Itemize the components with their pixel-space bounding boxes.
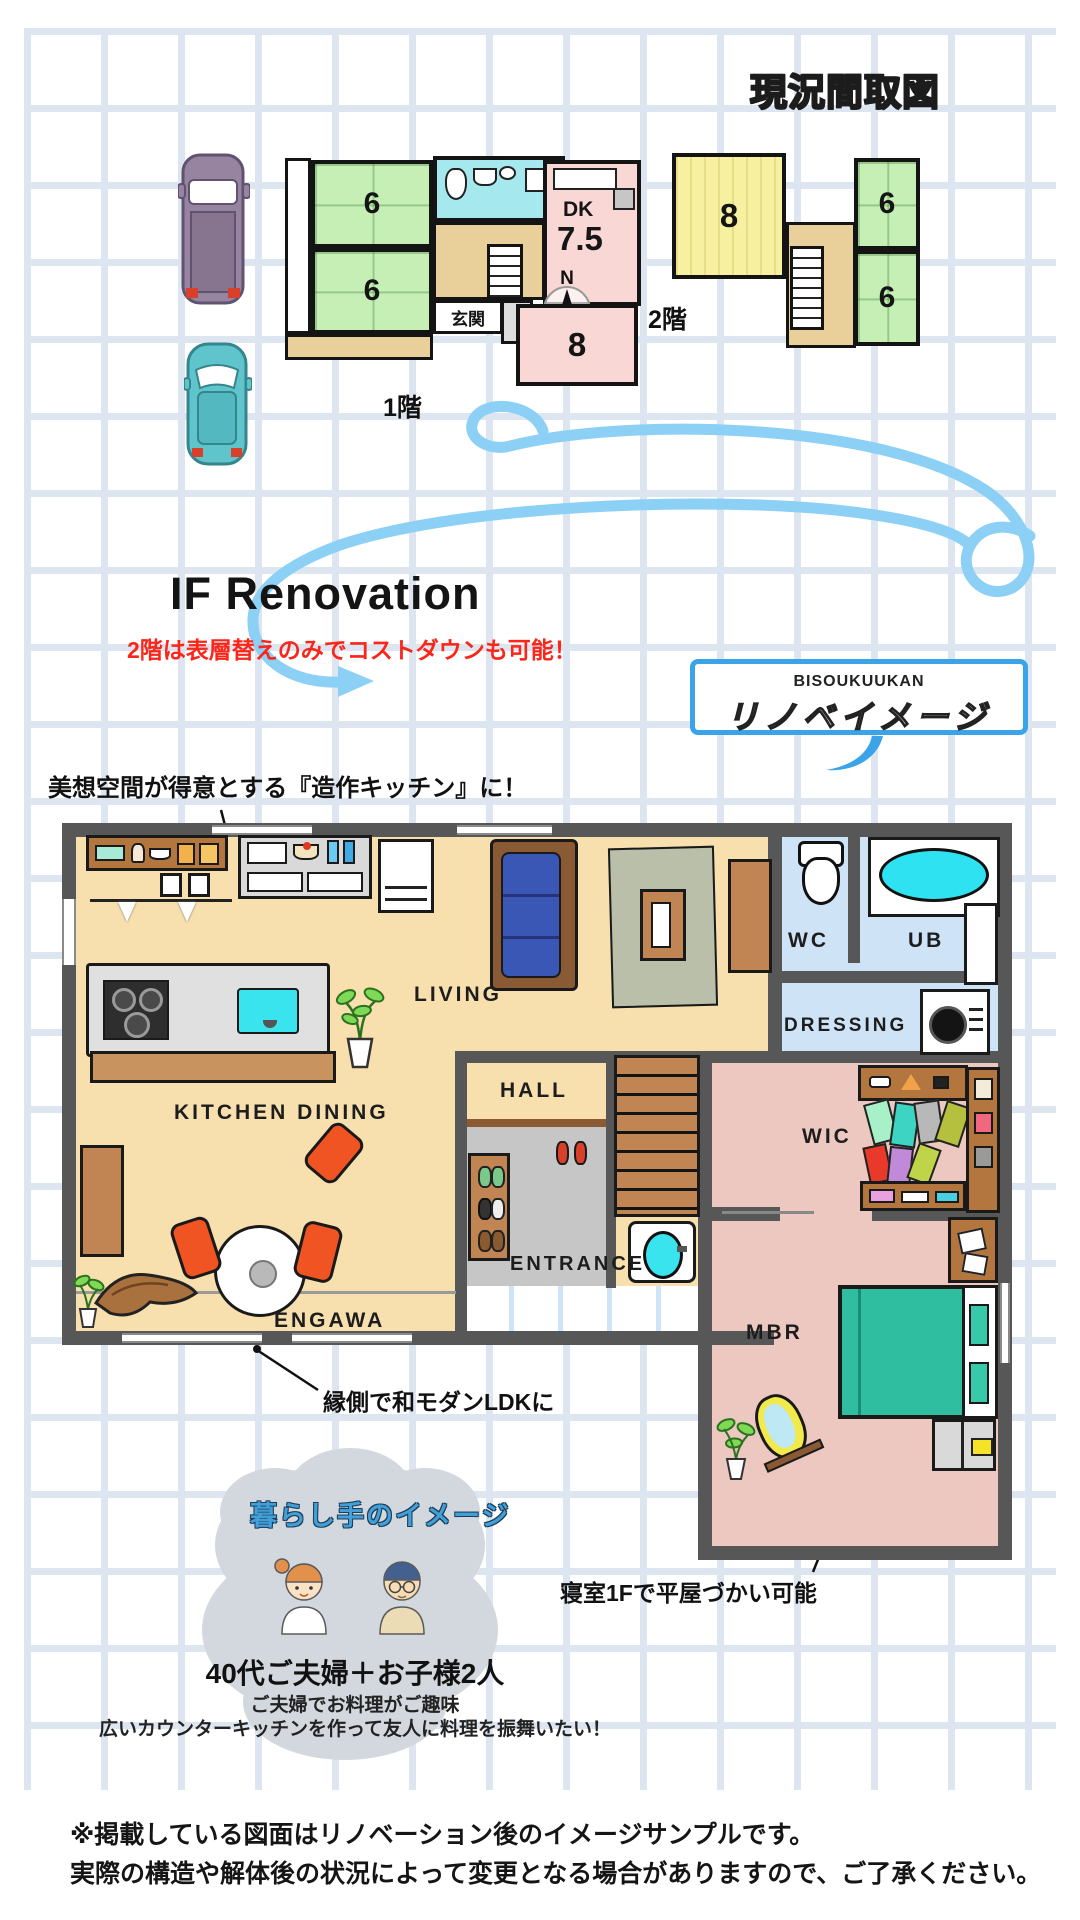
- box-icon: [199, 843, 219, 865]
- wall: [998, 823, 1012, 1560]
- renovation-badge: BISOUKUUKAN リノベイメージ: [690, 659, 1028, 735]
- hat-icon: [901, 1074, 921, 1090]
- shoe-icon: [491, 1230, 505, 1252]
- persona-wish: 広いカウンターキッチンを作って友人に料理を振舞いたい！: [0, 1714, 710, 1741]
- sink: [237, 988, 299, 1034]
- cost-note: 2階は表層替えのみでコストダウンも可能！: [127, 631, 577, 665]
- washer-door: [929, 1006, 967, 1044]
- cup-icon: [160, 873, 182, 897]
- bowl-icon: [293, 844, 319, 860]
- room-label-wc: WC: [788, 929, 829, 953]
- wall: [698, 1546, 1012, 1560]
- kitchen-counter-icon: [553, 168, 617, 190]
- washing-machine: [920, 989, 990, 1055]
- desk: [948, 1217, 998, 1283]
- wall: [455, 1051, 467, 1345]
- persona-cloud-title: 暮らし手のイメージ: [250, 1494, 510, 1533]
- room6-top-2f: 6: [854, 158, 920, 250]
- dining-table: [214, 1225, 306, 1317]
- cabinet-door: [974, 1146, 993, 1168]
- window: [292, 1333, 412, 1343]
- shoe-icon: [478, 1198, 492, 1220]
- tatami-room-top: 6: [311, 160, 433, 248]
- top-hat-icon: [933, 1076, 949, 1089]
- wall: [698, 1063, 712, 1560]
- dk-size-label: 7.5: [557, 220, 603, 258]
- wood-bench-icon: [90, 1261, 202, 1325]
- box-icon: [177, 843, 195, 865]
- room-label-mbr: MBR: [746, 1321, 803, 1345]
- washer-line: [969, 1008, 983, 1011]
- room-size-label: 6: [364, 274, 381, 308]
- sink-icon: [473, 168, 497, 186]
- disclaimer: ※掲載している図面はリノベーション後のイメージサンプルです。 実際の構造や解体後…: [70, 1816, 1041, 1894]
- folded-clothes: [869, 1189, 895, 1203]
- faucet-icon: [677, 1246, 687, 1252]
- toilet-bowl: [802, 857, 840, 905]
- room-label-dressing: DRESSING: [784, 1015, 907, 1037]
- stairs-2f: [790, 246, 824, 330]
- fridge-line: [385, 898, 427, 901]
- sideboard: [80, 1145, 124, 1257]
- burner-icon: [139, 988, 163, 1012]
- floorplan-2f: 8 6 6: [672, 150, 924, 350]
- washbasin-bowl: [643, 1231, 683, 1279]
- room8-2f: 8: [672, 153, 786, 279]
- bottle-icon: [327, 840, 339, 864]
- washer-line: [969, 1018, 983, 1021]
- faucet-icon: [263, 1020, 277, 1028]
- cabinet-door: [307, 872, 363, 892]
- room-label-entrance: ENTRANCE: [510, 1253, 645, 1276]
- kitchen-island: [86, 963, 330, 1057]
- badge-brand: BISOUKUUKAN: [695, 673, 1023, 691]
- window: [62, 899, 76, 965]
- back-counter: [238, 835, 372, 899]
- tv-board: [728, 859, 772, 973]
- washitsu-8-room: 8: [516, 304, 638, 386]
- wic-shelf: [858, 1065, 968, 1101]
- wic-lower-shelf: [860, 1181, 966, 1211]
- sofa-cushions: [501, 852, 561, 978]
- plant-icon: [70, 1269, 106, 1331]
- bath-door: [964, 903, 998, 985]
- plant-icon: [714, 1411, 758, 1481]
- renovation-headline: IF Renovation: [170, 568, 481, 620]
- sofa-seam: [503, 936, 559, 939]
- room6-bottom-2f: 6: [854, 250, 920, 346]
- fruit-icon: [303, 842, 311, 850]
- wall: [710, 1207, 780, 1221]
- car-compact-top-view: [184, 340, 252, 470]
- shoe-icon: [491, 1198, 505, 1220]
- table-pedestal: [249, 1260, 277, 1288]
- stove: [103, 980, 169, 1040]
- window: [122, 1333, 262, 1343]
- room-label-kitchen-dining: KITCHEN DINING: [174, 1101, 389, 1125]
- dresser: [932, 1419, 996, 1471]
- window: [457, 825, 552, 835]
- cabinet-door: [247, 872, 303, 892]
- kitchen-annotation: 美想空間が得意とする『造作キッチン』に！: [48, 768, 527, 803]
- curtain-icon: [118, 902, 136, 922]
- folded-clothes: [935, 1191, 959, 1203]
- box-icon: [869, 1076, 891, 1088]
- bowl-icon: [149, 848, 171, 860]
- persona-family: 40代ご夫婦＋お子様2人: [0, 1652, 710, 1692]
- jar-icon: [131, 843, 145, 863]
- tray-icon: [247, 842, 287, 864]
- badge-title: リノベイメージ: [695, 692, 1023, 738]
- compass-n-label: N: [560, 268, 574, 289]
- cabinet-door: [974, 1078, 993, 1100]
- engawa-annotation: 縁側で和モダンLDKに: [323, 1383, 554, 1417]
- room-label-living: LIVING: [414, 983, 502, 1007]
- wall: [848, 823, 860, 963]
- fridge-line: [385, 886, 427, 889]
- entrance-threshold: [467, 1119, 606, 1127]
- page-title: 現況間取図: [750, 62, 940, 116]
- engawa-strip-1f: [285, 158, 311, 334]
- burner-icon: [124, 1012, 150, 1038]
- pillow: [969, 1304, 989, 1346]
- pillow: [969, 1362, 989, 1404]
- window: [212, 825, 312, 835]
- shoe-icon: [574, 1141, 587, 1165]
- disclaimer-line2: 実際の構造や解体後の状況によって変更となる場合がありますので、ご了承ください。: [70, 1855, 1041, 1894]
- room-label-hall: HALL: [500, 1079, 568, 1103]
- toilet-icon: [445, 168, 467, 200]
- blanket-fold: [858, 1289, 861, 1415]
- paper-icon: [961, 1252, 988, 1276]
- room-size-label: 6: [879, 281, 896, 315]
- shoe-cabinet: [468, 1153, 510, 1261]
- bed-blanket: [839, 1286, 965, 1418]
- shoe-icon: [478, 1166, 492, 1188]
- plant-icon: [334, 981, 386, 1069]
- shoe-icon: [478, 1230, 492, 1252]
- stove-icon: [613, 188, 635, 210]
- room-size-label: 6: [879, 187, 896, 221]
- sofa: [490, 839, 578, 991]
- room-size-label: 6: [364, 187, 381, 221]
- bedroom-annotation: 寝室1Fで平屋づかい可能: [560, 1574, 817, 1608]
- shoe-icon: [556, 1141, 569, 1165]
- tatami-room-bottom: 6: [311, 248, 433, 334]
- closet-rod: [722, 1211, 814, 1214]
- dresser-divider: [961, 1422, 964, 1468]
- washer-line: [969, 1028, 983, 1031]
- genkan-label: 玄関: [451, 305, 485, 330]
- room-size-label: 8: [720, 197, 738, 235]
- room-size-label: 8: [568, 326, 586, 364]
- refrigerator: [378, 839, 434, 913]
- dk-label: DK: [563, 198, 593, 222]
- persona-hobby: ご夫婦でお料理がご趣味: [0, 1690, 710, 1717]
- staircase: [614, 1055, 700, 1217]
- cutting-board-icon: [95, 845, 125, 861]
- room-label-engawa: ENGAWA: [274, 1309, 385, 1333]
- engawa-bottom-1f: [285, 334, 433, 360]
- couple-illustration: [252, 1550, 462, 1636]
- curtain-icon: [178, 902, 196, 922]
- folded-clothes: [901, 1191, 929, 1203]
- armchair: [640, 889, 686, 961]
- floor1-caption: 1階: [383, 388, 422, 424]
- room-label-wic: WIC: [802, 1125, 852, 1149]
- kitchen-shelf: [86, 835, 228, 871]
- window: [1000, 1283, 1010, 1363]
- bathtub-water: [879, 848, 989, 902]
- cup-icon: [188, 873, 210, 897]
- curtain-rail: [90, 899, 232, 902]
- bottle-icon: [343, 840, 355, 864]
- disclaimer-line1: ※掲載している図面はリノベーション後のイメージサンプルです。: [70, 1816, 1041, 1855]
- armchair-cushion: [651, 902, 671, 948]
- cabinet-door: [974, 1112, 993, 1134]
- wic-cabinet: [966, 1067, 1000, 1213]
- genkan-room: 玄関: [433, 300, 503, 334]
- shoe-icon: [491, 1166, 505, 1188]
- double-bed: [838, 1285, 998, 1419]
- floor2-caption: 2階: [648, 300, 687, 336]
- stairs-1f: [487, 244, 523, 300]
- lamp-icon: [971, 1438, 993, 1456]
- paper-icon: [957, 1228, 987, 1255]
- island-counter-wood: [90, 1051, 336, 1083]
- room-label-ub: UB: [908, 929, 944, 953]
- burner-icon: [112, 988, 136, 1012]
- sofa-seam: [503, 894, 559, 897]
- car-van-top-view: [178, 150, 250, 310]
- basin-icon: [499, 166, 516, 180]
